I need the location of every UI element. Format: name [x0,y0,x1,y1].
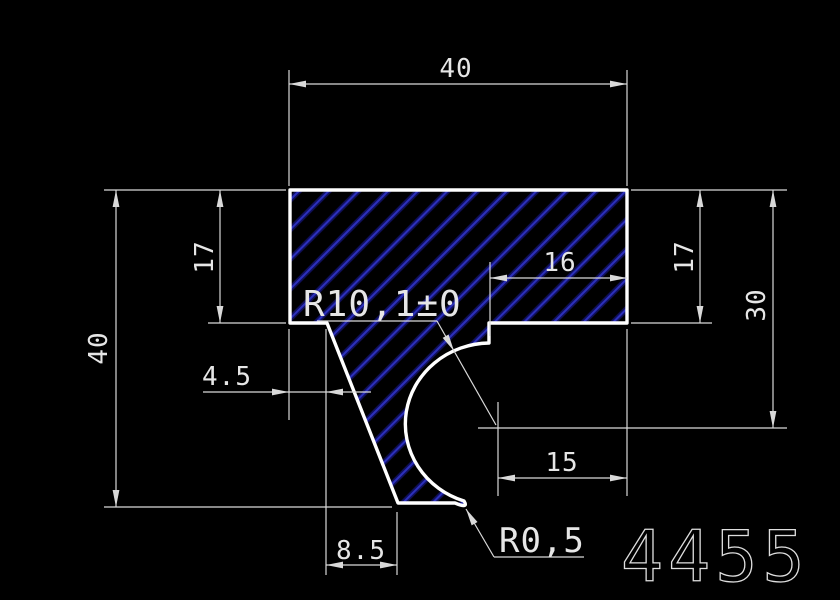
dim-text-center-to-edge: 15 [545,448,578,478]
radius-label-large: R10,1±0 [303,284,462,325]
dim-text-left-flange: 17 [190,240,220,273]
dim-text-notch-depth: 30 [742,288,772,321]
dim-text-slant-run: 8.5 [336,536,386,566]
radius-label-small: R0,5 [499,521,585,561]
part-number-text: 4455 [621,516,810,598]
dim-text-notch-width: 16 [543,248,576,278]
cad-viewport[interactable]: 40 40 17 4.5 8.5 16 17 30 15 R10,1±0 R0,… [0,0,840,600]
cad-drawing: 40 40 17 4.5 8.5 16 17 30 15 R10,1±0 R0,… [0,0,840,600]
dim-text-overall-height: 40 [84,331,114,364]
dim-text-top-width: 40 [439,54,472,84]
dim-text-slant-offset: 4.5 [202,362,252,392]
dim-text-right-flange: 17 [670,240,700,273]
